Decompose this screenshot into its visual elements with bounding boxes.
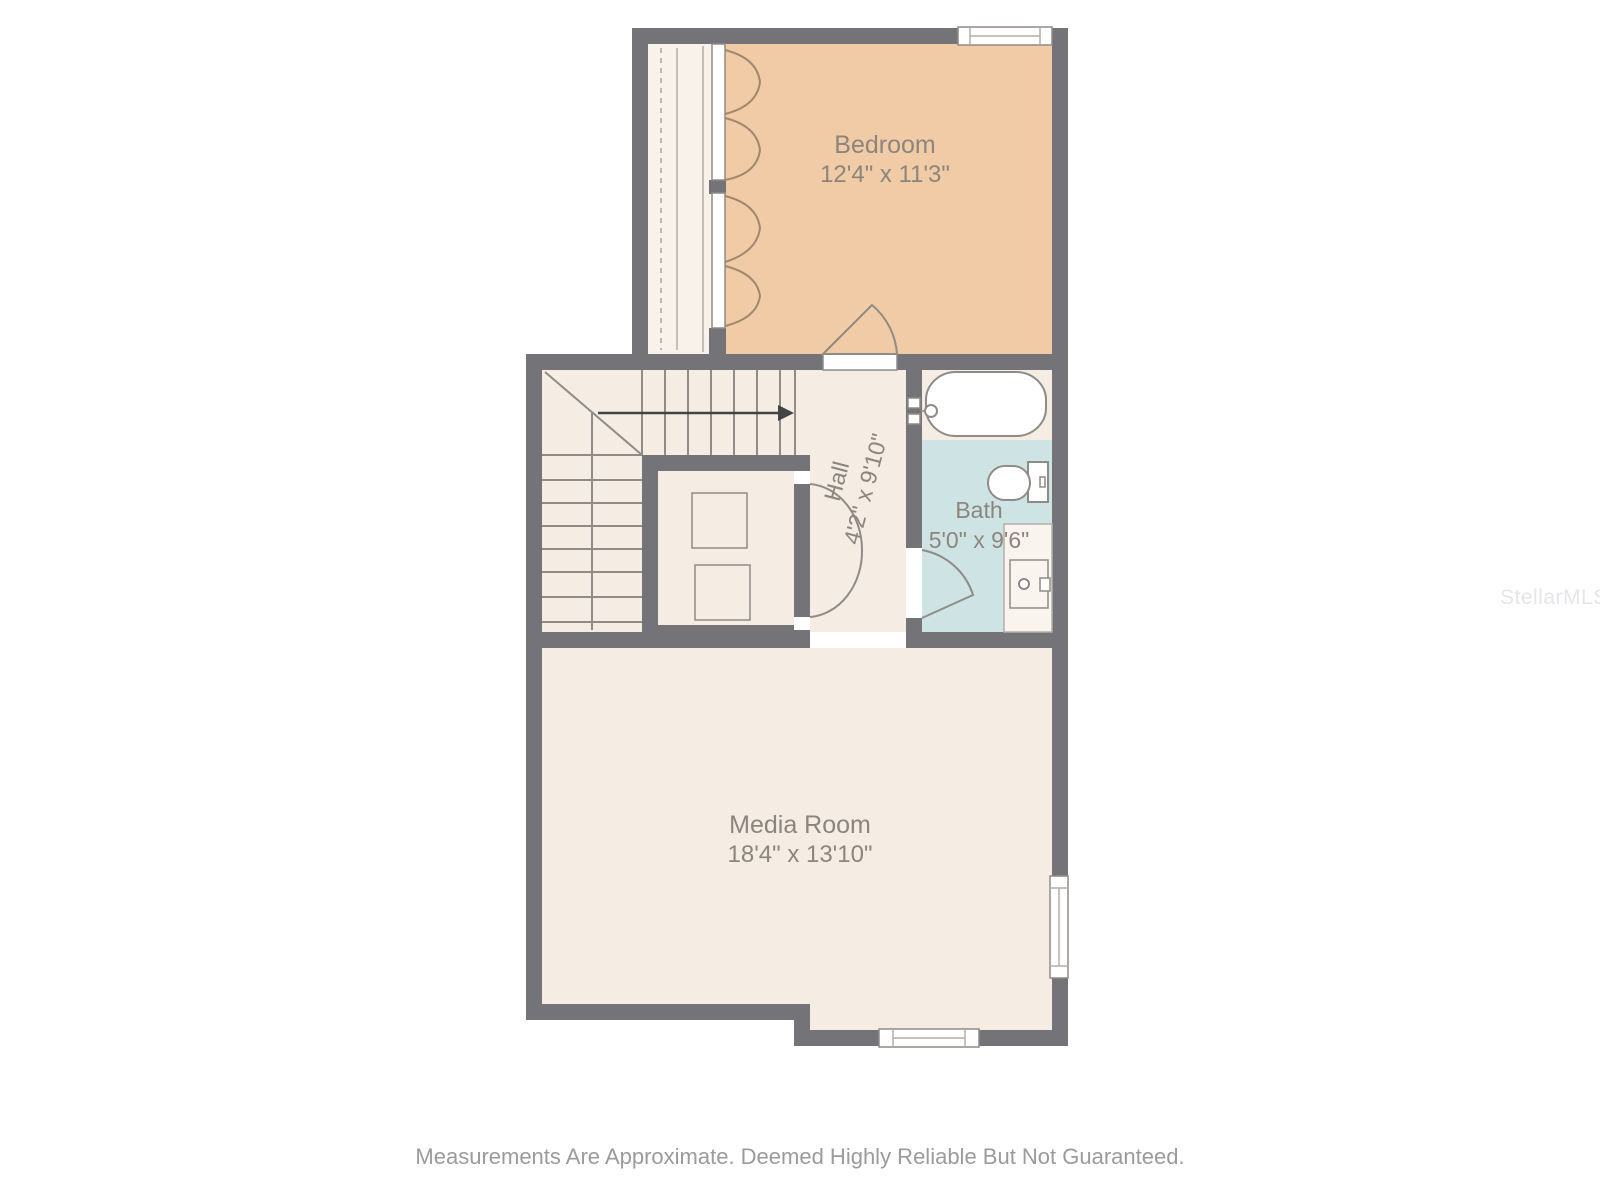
floorplan-drawing <box>0 0 1600 1200</box>
floorplan-page: { "floorplan": { "rooms": { "bedroom": {… <box>0 0 1600 1200</box>
disclaimer-text: Measurements Are Approximate. Deemed Hig… <box>0 1144 1600 1170</box>
wall-bottom-left <box>526 1004 810 1020</box>
stellar-mls-watermark: StellarMLS <box>1500 586 1600 610</box>
closet-door-stub-mid <box>709 180 726 194</box>
wall-left <box>526 354 542 1020</box>
wall-bedroom-hall <box>526 354 1068 370</box>
bath-door-opening <box>906 548 922 618</box>
wall-bath-media <box>906 632 1068 648</box>
utility-door-jamb-bottom <box>794 617 810 630</box>
bedroom-dims: 12'4" x 11'3" <box>820 160 950 190</box>
window-media-right <box>1050 876 1068 978</box>
bath-name: Bath <box>929 495 1030 525</box>
closet-door-panel-upper <box>712 44 725 180</box>
utility-door-jamb-top <box>794 471 810 484</box>
bedroom-door-sill <box>823 354 897 370</box>
bath-dims: 5'0" x 9'6" <box>929 525 1030 555</box>
window-bedroom-top <box>958 27 1052 45</box>
media-room-floor-ext <box>810 1004 1052 1030</box>
media-room-dims: 18'4" x 13'10" <box>728 840 873 870</box>
wall-bedroom-left <box>632 28 648 370</box>
wall-closet-left <box>642 455 658 648</box>
bedroom-label: Bedroom 12'4" x 11'3" <box>820 130 950 190</box>
wall-closet-bottom <box>642 625 810 648</box>
window-media-bottom <box>879 1029 979 1047</box>
media-room-label: Media Room 18'4" x 13'10" <box>728 810 873 870</box>
media-room-name: Media Room <box>728 810 873 840</box>
bathtub-icon <box>926 372 1046 436</box>
bedroom-name: Bedroom <box>820 130 950 160</box>
closet-door-panel-lower <box>712 193 725 328</box>
bath-label: Bath 5'0" x 9'6" <box>929 495 1030 555</box>
wall-closet-top <box>642 455 810 471</box>
closet-door-stub-bottom <box>709 328 726 354</box>
